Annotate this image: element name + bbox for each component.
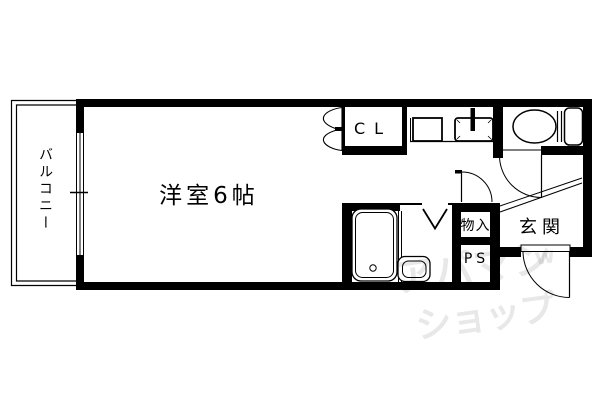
faucet bbox=[471, 108, 476, 131]
kitchen-sink bbox=[455, 108, 493, 141]
toilet bbox=[503, 108, 583, 150]
floorplan: 洋室6帖 バルコニー CL 物入 PS 玄関 アパマン w ショップ bbox=[0, 0, 600, 400]
balcony-label: バルコニー bbox=[35, 147, 55, 232]
corridor-door bbox=[455, 170, 492, 202]
window bbox=[70, 133, 88, 255]
watermark-mark: w bbox=[533, 243, 557, 271]
stove bbox=[413, 118, 442, 141]
storage-label: 物入 bbox=[459, 215, 492, 235]
closet-door bbox=[323, 108, 343, 151]
bathtub bbox=[352, 209, 397, 281]
washroom-folding-door bbox=[423, 209, 447, 229]
toilet-door bbox=[499, 155, 541, 198]
main-room-label: 洋室6帖 bbox=[145, 176, 273, 210]
closet-label: CL bbox=[348, 119, 398, 138]
floorplan-svg bbox=[0, 0, 600, 400]
